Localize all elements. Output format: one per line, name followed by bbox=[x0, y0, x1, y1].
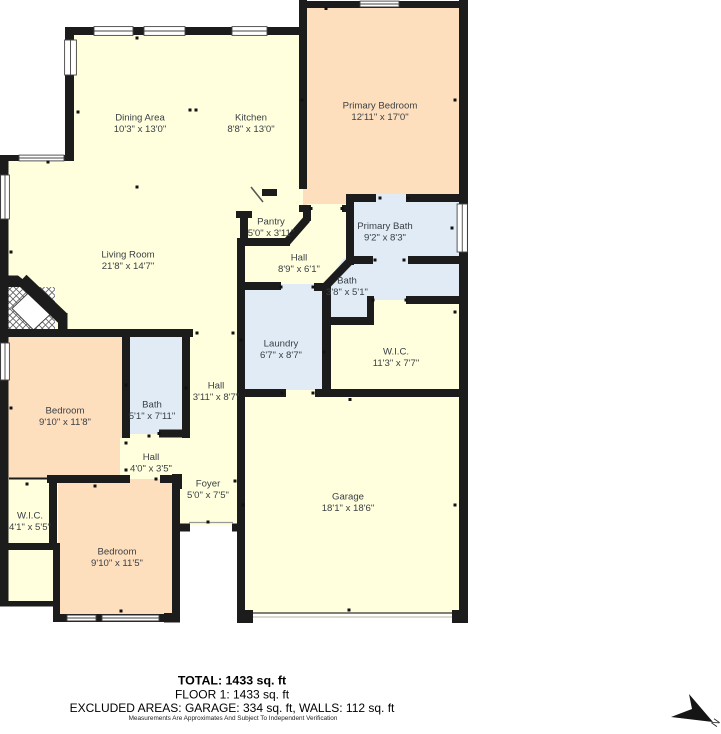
svg-text:4'1" x 5'5": 4'1" x 5'5" bbox=[9, 522, 51, 533]
svg-text:Bath: Bath bbox=[142, 400, 162, 411]
svg-text:Garage: Garage bbox=[332, 492, 364, 503]
svg-text:5'1" x 7'11": 5'1" x 7'11" bbox=[129, 411, 176, 422]
svg-text:8'8" x 13'0": 8'8" x 13'0" bbox=[227, 124, 274, 135]
svg-text:Foyer: Foyer bbox=[196, 479, 221, 490]
svg-text:Living Room: Living Room bbox=[101, 250, 154, 261]
svg-text:21'8" x 14'7": 21'8" x 14'7" bbox=[102, 261, 155, 272]
svg-text:Laundry: Laundry bbox=[264, 339, 299, 350]
svg-text:Hall: Hall bbox=[208, 381, 225, 392]
svg-text:3'11" x 8'7": 3'11" x 8'7" bbox=[193, 392, 240, 403]
svg-text:4'0" x 3'5": 4'0" x 3'5" bbox=[130, 464, 172, 475]
svg-text:8'9" x 6'1": 8'9" x 6'1" bbox=[278, 264, 320, 275]
svg-text:W.I.C.: W.I.C. bbox=[17, 511, 43, 522]
svg-text:Bath: Bath bbox=[337, 276, 357, 287]
svg-text:Hall: Hall bbox=[291, 253, 308, 264]
svg-text:9'10" x 11'5": 9'10" x 11'5" bbox=[91, 558, 143, 569]
svg-text:FLOOR 1: 1433 sq. ft: FLOOR 1: 1433 sq. ft bbox=[175, 687, 290, 701]
svg-text:5'0" x 3'11": 5'0" x 3'11" bbox=[248, 228, 295, 239]
svg-text:Pantry: Pantry bbox=[257, 217, 285, 228]
svg-text:9'2" x 8'3": 9'2" x 8'3" bbox=[364, 233, 406, 244]
svg-text:Primary Bedroom: Primary Bedroom bbox=[343, 101, 418, 112]
svg-text:11'3" x 7'7": 11'3" x 7'7" bbox=[373, 358, 420, 369]
svg-text:12'11" x 17'0": 12'11" x 17'0" bbox=[351, 112, 408, 123]
svg-text:Bedroom: Bedroom bbox=[98, 547, 137, 558]
svg-text:Kitchen: Kitchen bbox=[235, 113, 267, 124]
svg-text:W.I.C.: W.I.C. bbox=[383, 347, 409, 358]
svg-text:Measurements Are Approximates: Measurements Are Approximates And Subjec… bbox=[129, 715, 338, 722]
svg-text:Primary Bath: Primary Bath bbox=[357, 221, 412, 232]
svg-text:10'3" x 13'0": 10'3" x 13'0" bbox=[114, 124, 167, 135]
svg-text:3'8" x 5'1": 3'8" x 5'1" bbox=[326, 287, 368, 298]
svg-text:9'10" x 11'8": 9'10" x 11'8" bbox=[39, 417, 91, 428]
svg-text:Hall: Hall bbox=[143, 452, 160, 463]
svg-text:6'7" x 8'7": 6'7" x 8'7" bbox=[260, 350, 302, 361]
svg-text:Bedroom: Bedroom bbox=[46, 406, 85, 417]
svg-text:Dining Area: Dining Area bbox=[115, 113, 165, 124]
svg-text:5'0" x 7'5": 5'0" x 7'5" bbox=[187, 490, 229, 501]
svg-text:18'1" x 18'6": 18'1" x 18'6" bbox=[322, 503, 375, 514]
svg-text:TOTAL: 1433 sq. ft: TOTAL: 1433 sq. ft bbox=[178, 674, 286, 688]
svg-text:EXCLUDED AREAS: GARAGE: 334 sq: EXCLUDED AREAS: GARAGE: 334 sq. ft, WALL… bbox=[70, 701, 395, 715]
